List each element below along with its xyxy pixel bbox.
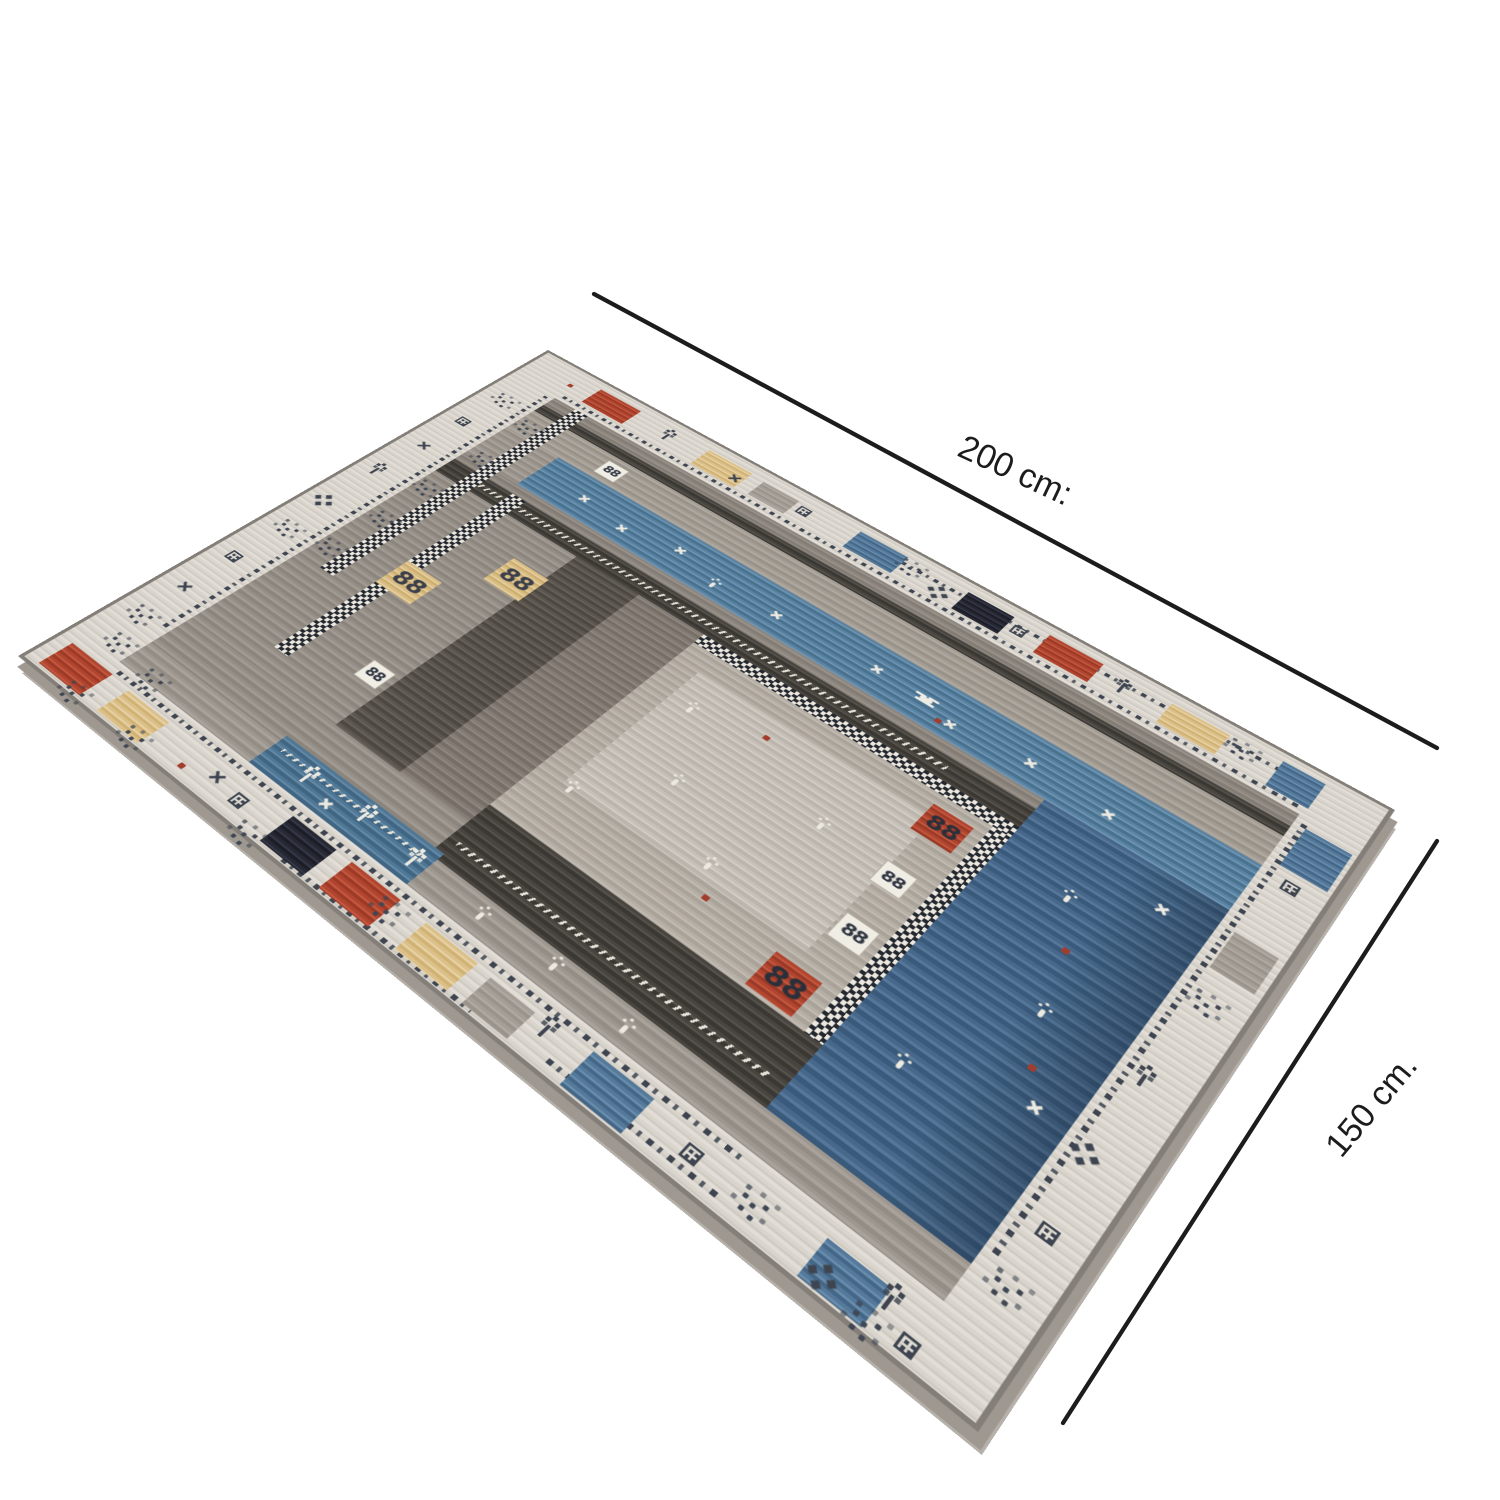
rug-border-rect-beige — [395, 923, 478, 991]
rug-motif-dm — [938, 587, 945, 591]
rug-motif-dots — [1195, 994, 1202, 1000]
rug-motif-q8 — [1279, 879, 1301, 897]
rug-motif-dots — [112, 636, 118, 640]
rug-motif-q8 — [893, 1331, 922, 1361]
rug-motif-dots — [742, 1192, 750, 1199]
rug-motif-tree — [537, 1024, 551, 1037]
product-photo-canvas: 200 cm: 150 cm. — [0, 0, 1500, 1500]
width-dimension-label: 200 cm: — [952, 428, 1078, 514]
rug-motif-q8 — [1009, 624, 1029, 638]
rug-motif-q8 — [1034, 1220, 1061, 1247]
rug-border-rect-red — [318, 862, 400, 927]
rug-motif-tree — [1116, 685, 1125, 693]
rug-motif-dots — [498, 396, 503, 399]
rug-motif-dots — [135, 608, 141, 612]
rug-motif-q8 — [454, 416, 472, 427]
rug-photo — [18, 350, 1395, 1432]
rug-motif-tree — [1136, 1074, 1147, 1087]
rug-motif-xm — [176, 580, 194, 592]
rug-motif-q8 — [794, 506, 812, 518]
rug-border-rect-navy — [260, 816, 337, 875]
rug-motif-xm — [416, 441, 432, 450]
rug-motif-tree — [661, 434, 670, 440]
rug-motif-rdot — [567, 383, 574, 387]
rug-motif-tree — [369, 467, 380, 473]
rug-motif-dots — [994, 1275, 1002, 1283]
rug-motif-dots — [237, 825, 244, 830]
rug-border-rect-blue — [797, 1238, 892, 1328]
rug-motif-dm — [1084, 1143, 1095, 1150]
rug-border-rect-gray — [748, 482, 800, 514]
depth-dimension-label: 150 cm. — [1318, 1047, 1426, 1165]
rug-border-rect-beige — [96, 691, 169, 744]
rug-motif-rdot — [177, 762, 187, 769]
rug-motif-xm — [207, 770, 227, 785]
rug-motif-dots — [281, 522, 287, 526]
rug-motif-q8 — [224, 550, 244, 563]
rug-motif-dm — [326, 495, 332, 499]
rug-motif-dm — [823, 1265, 833, 1274]
rug-border-rect-red — [39, 643, 113, 695]
rug-motif-q8 — [227, 792, 251, 810]
